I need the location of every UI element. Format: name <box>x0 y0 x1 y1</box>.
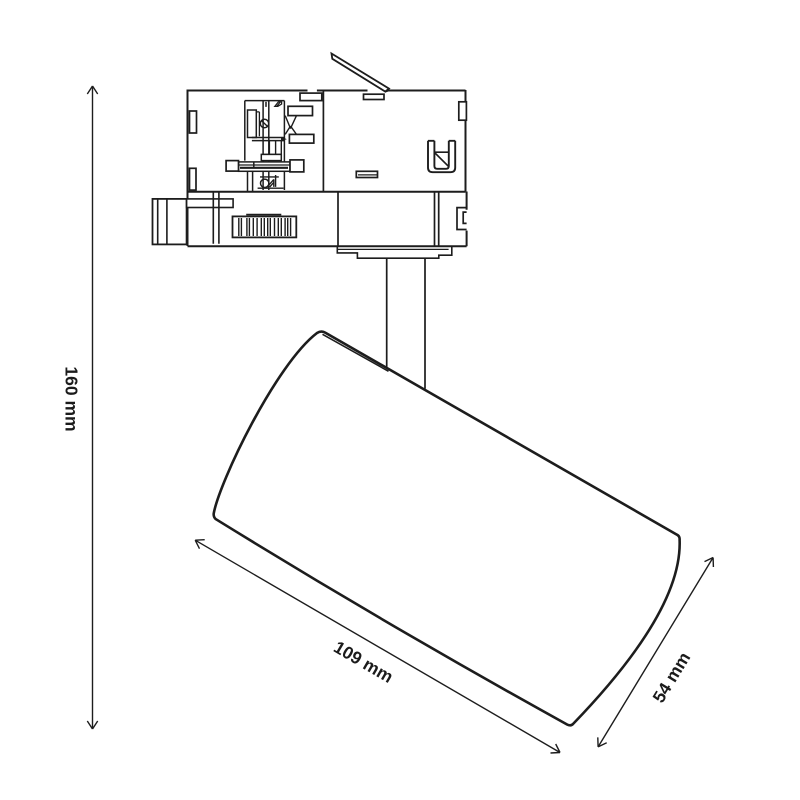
svg-text:160 mm: 160 mm <box>62 366 82 431</box>
